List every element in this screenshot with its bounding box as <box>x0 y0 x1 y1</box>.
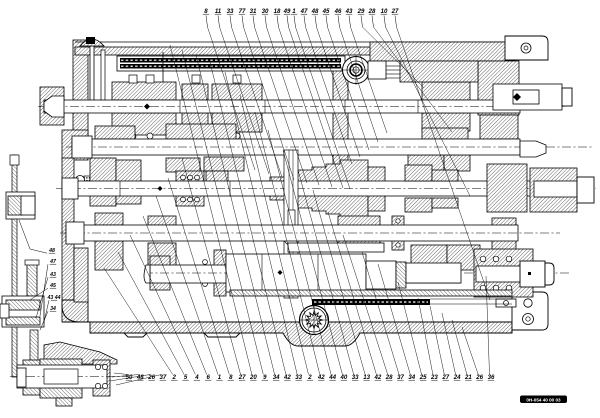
svg-text:0H-054 40 00 03: 0H-054 40 00 03 <box>526 397 561 402</box>
